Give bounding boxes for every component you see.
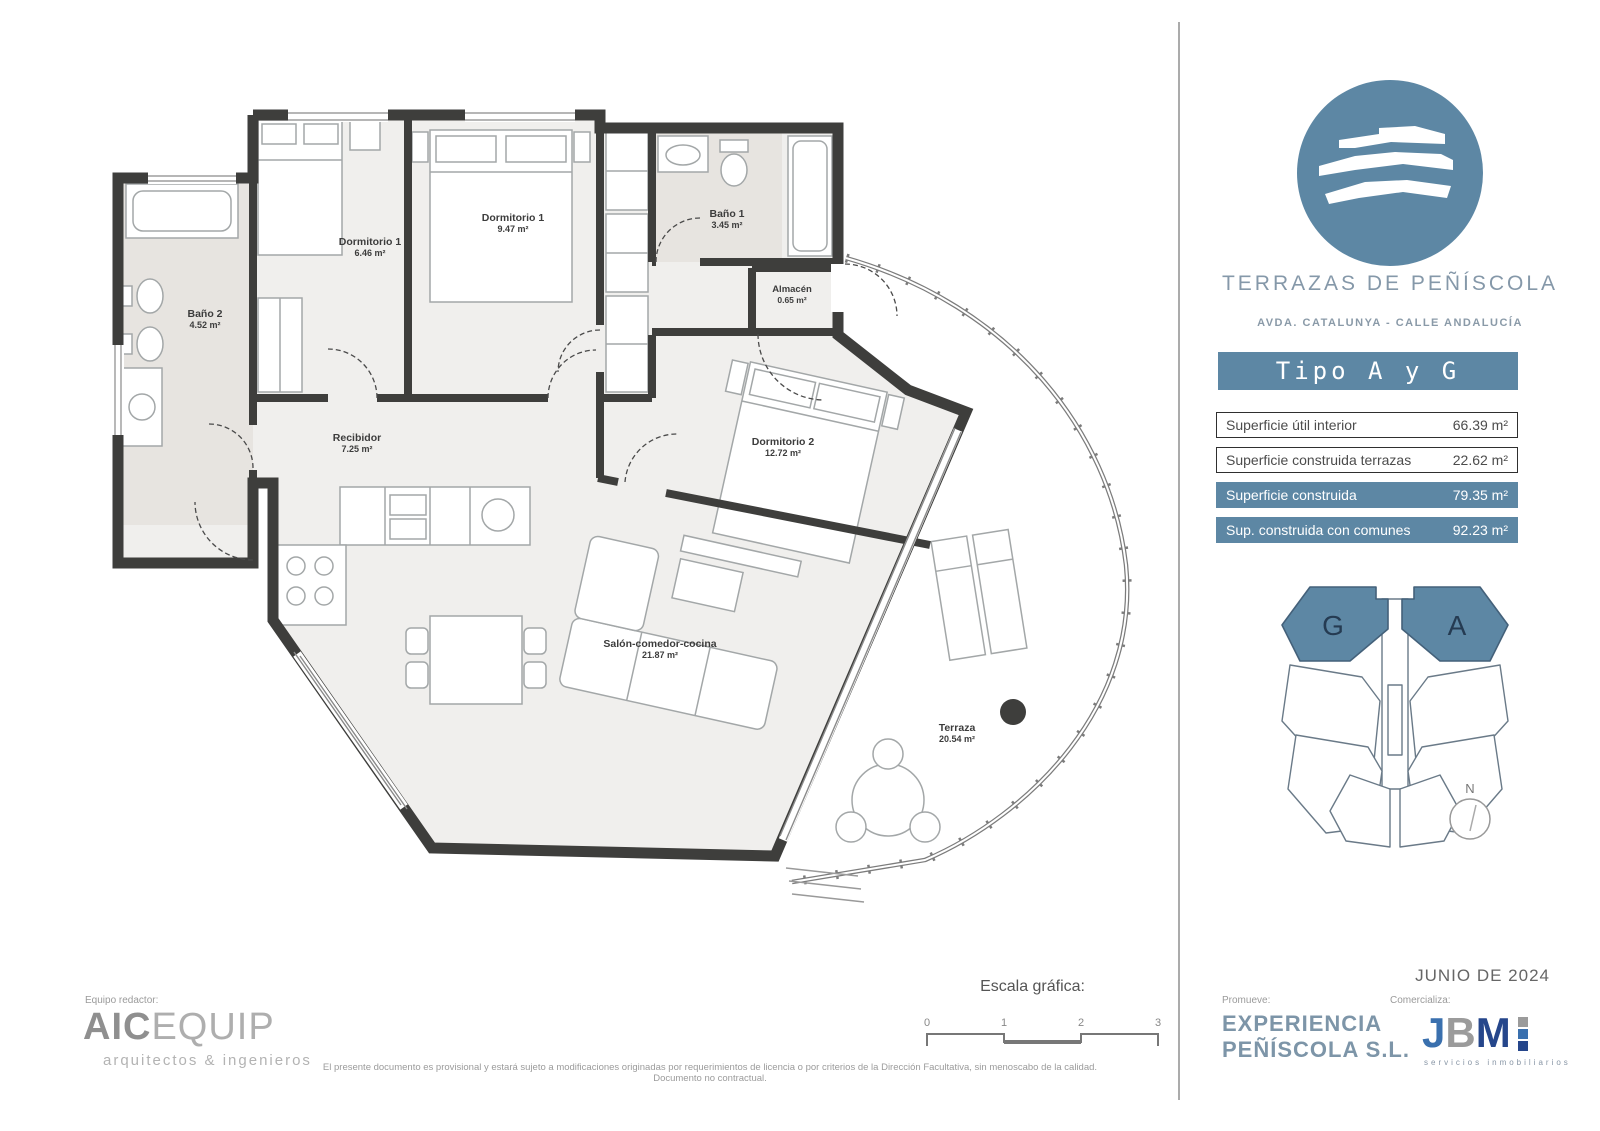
- aic-strong: AIC: [83, 1006, 151, 1048]
- bedroom1b-furniture: [412, 130, 590, 302]
- project-logo: [1295, 78, 1485, 268]
- agency-label: Comercializa:: [1390, 995, 1451, 1006]
- terrace-table-set: [836, 739, 940, 842]
- area-value: 92.23 m²: [1453, 522, 1508, 538]
- project-title: TERRAZAS DE PEÑÍSCOLA: [1188, 272, 1592, 296]
- scale-tick-3: 3: [1155, 1017, 1161, 1029]
- scale-bar: 0 1 2 3: [880, 1012, 1180, 1062]
- unit-type-label: Tipo A y G: [1276, 357, 1461, 385]
- team-label: Equipo redactor:: [85, 995, 158, 1006]
- aic-light: EQUIP: [151, 1006, 274, 1048]
- developer-label: Promueve:: [1222, 995, 1270, 1006]
- developer-name: EXPERIENCIA PEÑÍSCOLA S.L.: [1222, 1011, 1410, 1064]
- sun-loungers: [931, 529, 1027, 660]
- jbm-squares-icon: [1518, 1017, 1528, 1051]
- scale-tick-1: 1: [1001, 1017, 1007, 1029]
- jbm-tagline: servicios inmobiliarios: [1424, 1058, 1571, 1067]
- north-label: N: [1465, 781, 1474, 796]
- scale-tick-2: 2: [1078, 1017, 1084, 1029]
- area-label: Superficie útil interior: [1226, 417, 1357, 433]
- jbm-letter-b: B: [1445, 1012, 1475, 1054]
- unit-type-banner: Tipo A y G: [1218, 352, 1518, 390]
- areas-table: Superficie útil interior 66.39 m² Superf…: [1216, 412, 1518, 552]
- issue-date: JUNIO DE 2024: [1385, 966, 1550, 986]
- area-value: 79.35 m²: [1453, 487, 1508, 503]
- building-key-plan: G A N: [1230, 565, 1560, 875]
- disclaimer-text: El presente documento es provisional y e…: [300, 1062, 1120, 1084]
- area-label: Superficie construida terrazas: [1226, 452, 1411, 468]
- jbm-letter-j: J: [1422, 1012, 1445, 1054]
- area-label: Superficie construida: [1226, 487, 1357, 503]
- scale-tick-0: 0: [924, 1017, 930, 1029]
- areas-row-util-interior: Superficie útil interior 66.39 m²: [1216, 412, 1518, 438]
- aicequip-tagline: arquitectos & ingenieros: [103, 1052, 312, 1069]
- area-value: 22.62 m²: [1453, 452, 1508, 468]
- panel-divider: [1178, 22, 1180, 1100]
- developer-line2: PEÑÍSCOLA S.L.: [1222, 1037, 1410, 1063]
- terrace-column: [1000, 699, 1026, 725]
- developer-line1: EXPERIENCIA: [1222, 1011, 1410, 1037]
- unit-g-label: G: [1322, 610, 1344, 641]
- jbm-letter-m: M: [1476, 1012, 1511, 1054]
- area-value: 66.39 m²: [1453, 417, 1508, 433]
- wardrobes: [606, 132, 648, 392]
- aicequip-logo: AICEQUIP: [83, 1008, 275, 1046]
- area-label: Sup. construida con comunes: [1226, 522, 1410, 538]
- plan-sheet: Dormitorio 1 6.46 m² Dormitorio 1 9.47 m…: [0, 0, 1600, 1131]
- areas-row-construida-comunes: Sup. construida con comunes 92.23 m²: [1216, 517, 1518, 543]
- project-address: AVDA. CATALUNYA - CALLE ANDALUCÍA: [1188, 317, 1592, 329]
- areas-row-construida-terrazas: Superficie construida terrazas 22.62 m²: [1216, 447, 1518, 473]
- floor-plan-drawing: [0, 0, 1180, 960]
- scale-title: Escala gráfica:: [855, 978, 1085, 996]
- jbm-logo: JBM: [1422, 1012, 1528, 1054]
- areas-row-construida: Superficie construida 79.35 m²: [1216, 482, 1518, 508]
- unit-a-label: A: [1448, 610, 1467, 641]
